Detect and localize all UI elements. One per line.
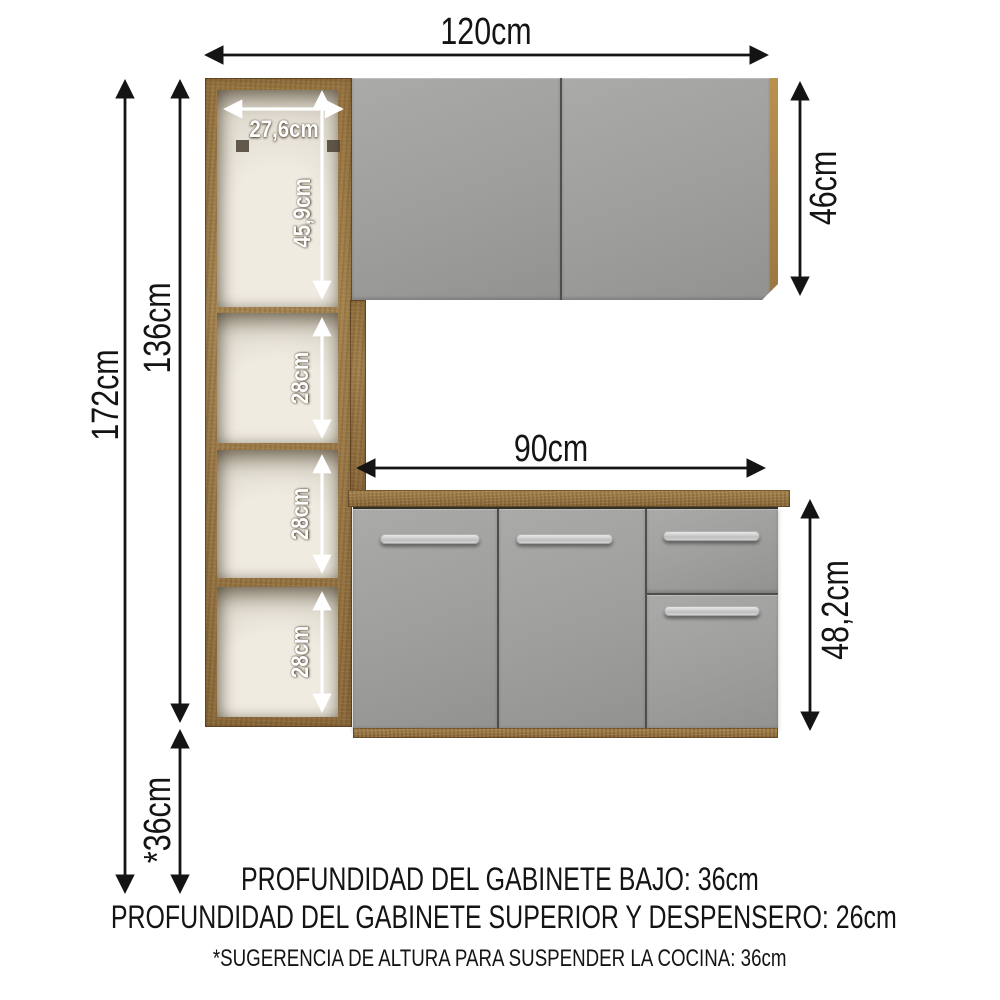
footnotes: PROFUNDIDAD DEL GABINETE BAJO: 36cm PROF… [0, 860, 1000, 976]
label-unit-height-136: 136cm [139, 282, 177, 373]
label-suspension-36: *36cm [139, 777, 177, 863]
footnote-depth-upper: PROFUNDIDAD DEL GABINETE SUPERIOR Y DESP… [0, 898, 1000, 936]
label-lower-height-48: 48,2cm [817, 560, 855, 660]
footnote-suspension-note: *SUGERENCIA DE ALTURA PARA SUSPENDER LA … [0, 942, 1000, 976]
label-pantry-width: 27,6cm [249, 118, 318, 142]
label-total-height-172: 172cm [87, 349, 125, 440]
footnote-depth-lower: PROFUNDIDAD DEL GABINETE BAJO: 36cm [0, 860, 1000, 898]
label-shelf-3: 28cm [289, 626, 313, 678]
label-shelf-2: 28cm [289, 488, 313, 540]
kitchen-dimension-diagram: 120cm 172cm 136cm *36cm 46cm 48,2cm 90cm… [0, 0, 1000, 1000]
label-shelf-1: 28cm [289, 352, 313, 404]
label-lower-width-90: 90cm [514, 430, 588, 468]
label-upper-height-46: 46cm [805, 151, 843, 225]
label-width-120: 120cm [440, 13, 531, 51]
label-pantry-opening-height: 45,9cm [291, 178, 315, 247]
